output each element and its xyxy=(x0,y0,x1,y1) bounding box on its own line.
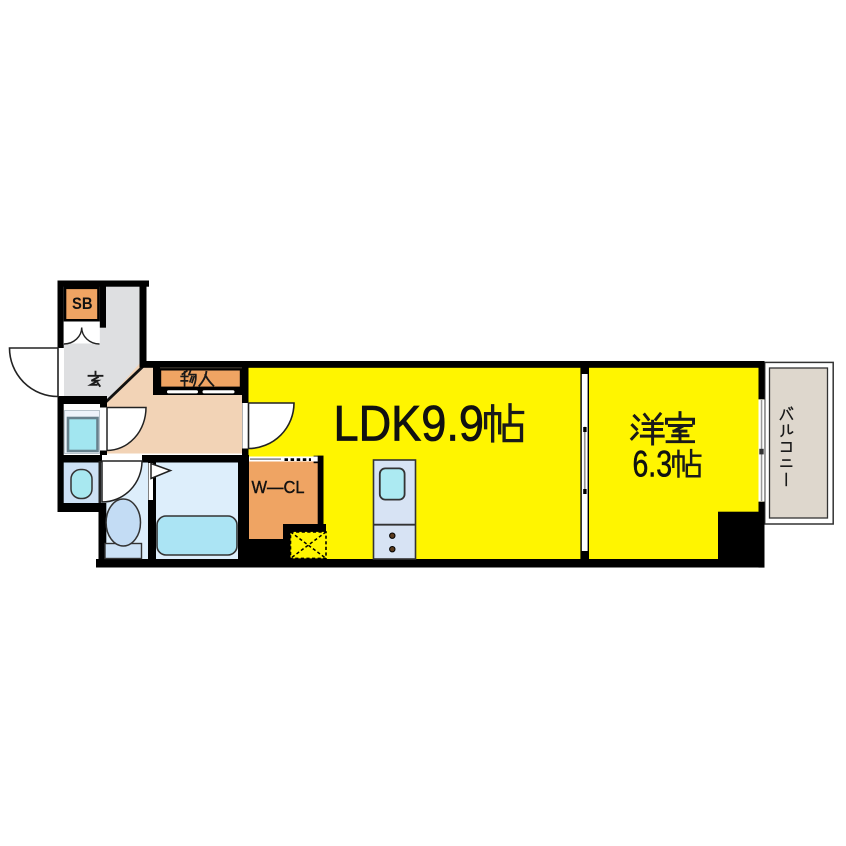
svg-text:6.3: 6.3 xyxy=(633,444,673,485)
svg-text:W—CL: W—CL xyxy=(252,477,305,497)
svg-text:LDK9.9: LDK9.9 xyxy=(334,396,485,452)
svg-text:SB: SB xyxy=(72,295,93,313)
